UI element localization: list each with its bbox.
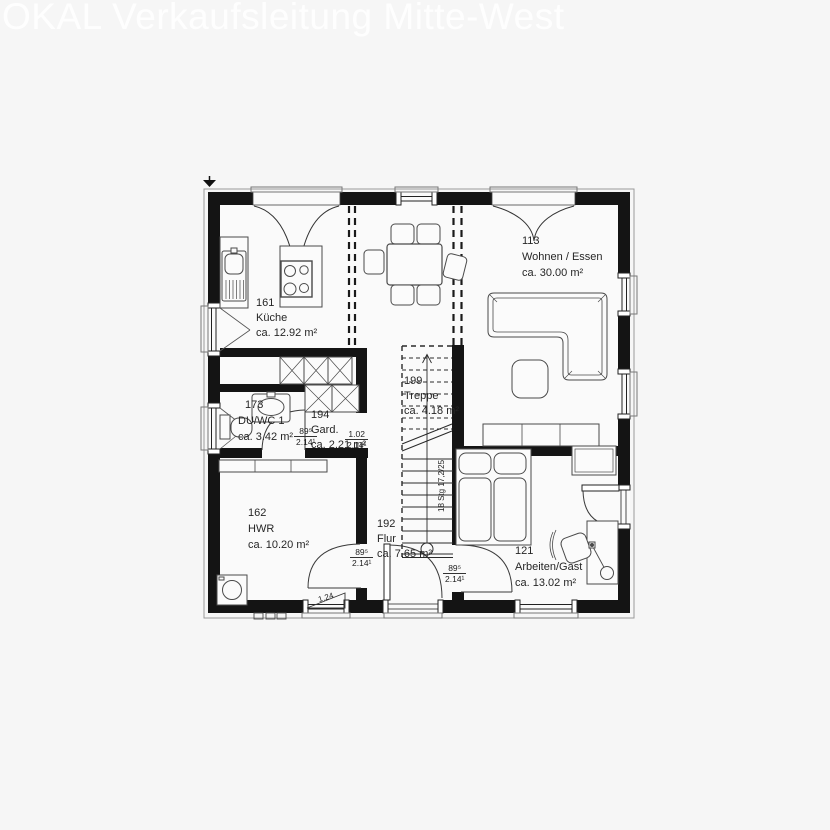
sideboard [483,424,599,446]
door-leaf [582,485,619,491]
chair [364,250,384,274]
stair-note: 18 Stg 17,2/25 [437,460,446,512]
room-name: Wohnen / Essen [522,249,603,265]
room-area: ca. 4.18 m² [404,404,459,419]
room-number: 192 [377,517,432,532]
room-area: ca. 7.65 m² [377,547,432,562]
door-dimension-duwc: 89⁵ 2.14¹ [294,426,317,447]
toilet-cistern [220,415,230,439]
room-name: Küche [256,311,317,326]
room-area: ca. 10.20 m² [248,537,309,553]
room-name: Treppe [404,389,459,404]
coffee-table [512,360,548,398]
room-label-arbeiten-gast: 121 Arbeiten/Gast ca. 13.02 m² [515,543,582,591]
room-area: ca. 3.42 m² [238,429,293,445]
pillow [459,453,491,474]
room-label-hwr: 162 HWR ca. 10.20 m² [248,505,309,553]
room-label-wohnen-essen: 113 Wohnen / Essen ca. 30.00 m² [522,233,603,281]
room-label-du-wc: 173 DU/WC 1 ca. 3.42 m² [238,397,293,445]
room-number: 161 [256,296,317,311]
room-area: ca. 30.00 m² [522,265,603,281]
desk-lamp-icon [601,567,614,580]
mattress [459,478,491,541]
room-number: 121 [515,543,582,559]
room-label-kueche: 161 Küche ca. 12.92 m² [256,296,317,341]
room-name: Arbeiten/Gast [515,559,582,575]
room-name: DU/WC 1 [238,413,293,429]
hwr-counter [219,460,327,472]
wardrobe [572,446,616,475]
chair [391,224,414,244]
chair [417,285,440,305]
room-number: 194 [311,408,366,423]
room-number: 162 [248,505,309,521]
north-pin-icon [203,176,216,187]
room-number: 199 [404,374,459,389]
room-number: 173 [245,397,293,413]
door-dimension-arbeiten: 89⁵ 2.14¹ [443,563,466,584]
dining-table [387,244,442,285]
floorplan-page: OKAL Verkaufsleitung Mitte-West [0,0,830,830]
room-area: ca. 12.92 m² [256,326,317,341]
chair [391,285,414,305]
room-label-treppe: 199 Treppe ca. 4.18 m² [404,374,459,419]
opening-dimension-gard: 1.02 2.14¹ [345,429,368,450]
room-name: HWR [248,521,309,537]
room-area: ca. 13.02 m² [515,575,582,591]
door-dimension-hwr: 89⁵ 2.14¹ [350,547,373,568]
chair [417,224,440,244]
mattress [494,478,526,541]
room-label-flur: 192 Flur ca. 7.65 m² [377,517,432,562]
pillow [494,453,526,474]
room-number: 113 [522,233,603,249]
room-name: Flur [377,532,432,547]
